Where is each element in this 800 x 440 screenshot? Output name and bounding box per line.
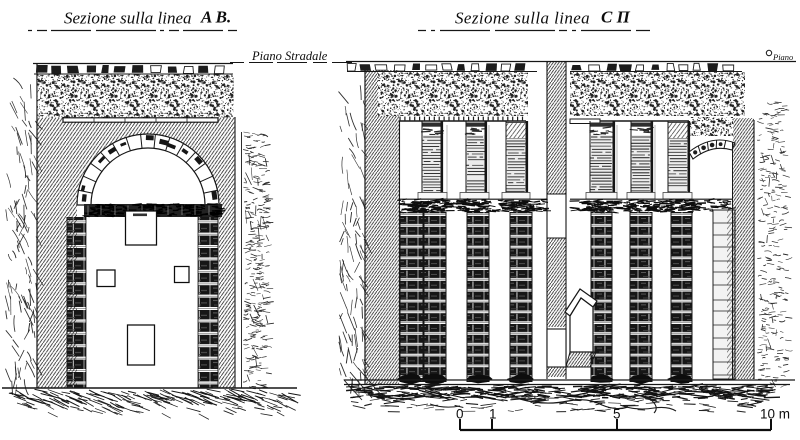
- svg-text:10 m: 10 m: [760, 407, 790, 422]
- svg-text:0: 0: [456, 407, 464, 422]
- svg-text:Sezione sulla linea: Sezione sulla linea: [455, 9, 590, 28]
- svg-text:Piano Stradale: Piano Stradale: [251, 49, 328, 63]
- svg-text:A B.: A B.: [200, 8, 231, 27]
- svg-text:Piano: Piano: [772, 52, 793, 62]
- svg-text:Sezione sulla linea: Sezione sulla linea: [64, 9, 191, 28]
- svg-text:1: 1: [489, 407, 497, 422]
- svg-text:C Π: C Π: [601, 8, 631, 27]
- svg-text:5: 5: [613, 407, 621, 422]
